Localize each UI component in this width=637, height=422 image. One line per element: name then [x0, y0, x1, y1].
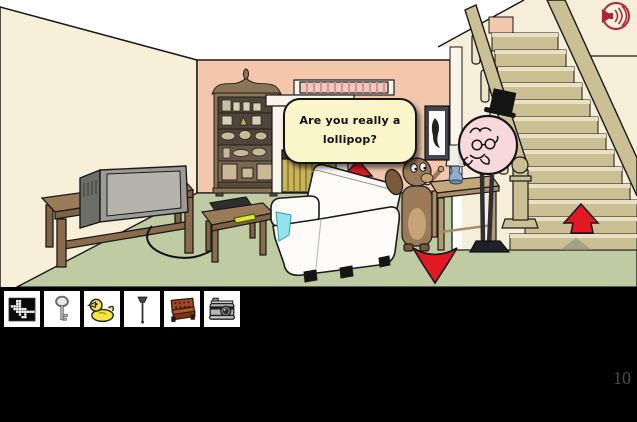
key-icon — [47, 294, 77, 324]
hutch-cabinet[interactable] — [212, 69, 281, 196]
picture-frame[interactable] — [425, 106, 449, 160]
inventory-item-camera[interactable] — [204, 291, 240, 327]
game-stage: Are you really a lollipop? — [0, 0, 637, 422]
inventory-item-plunger[interactable] — [124, 291, 160, 327]
pixel-picture-icon — [7, 294, 37, 324]
camera-icon — [207, 294, 237, 324]
inventory-item-rubber-duck[interactable] — [84, 291, 120, 327]
inventory-item-pixel-picture[interactable] — [4, 291, 40, 327]
rubber-duck-icon — [87, 294, 117, 324]
score-counter: 10 — [613, 368, 631, 389]
couch-icon — [167, 294, 197, 324]
inventory-item-key[interactable] — [44, 291, 80, 327]
speech-bubble-text: Are you really a lollipop? — [293, 112, 407, 149]
speech-bubble: Are you really a lollipop? — [283, 98, 417, 164]
inventory-item-couch[interactable] — [164, 291, 200, 327]
plunger-icon — [127, 294, 157, 324]
inventory-bar — [0, 287, 637, 422]
inventory-slots — [0, 287, 637, 327]
audio-icon[interactable] — [602, 3, 629, 29]
